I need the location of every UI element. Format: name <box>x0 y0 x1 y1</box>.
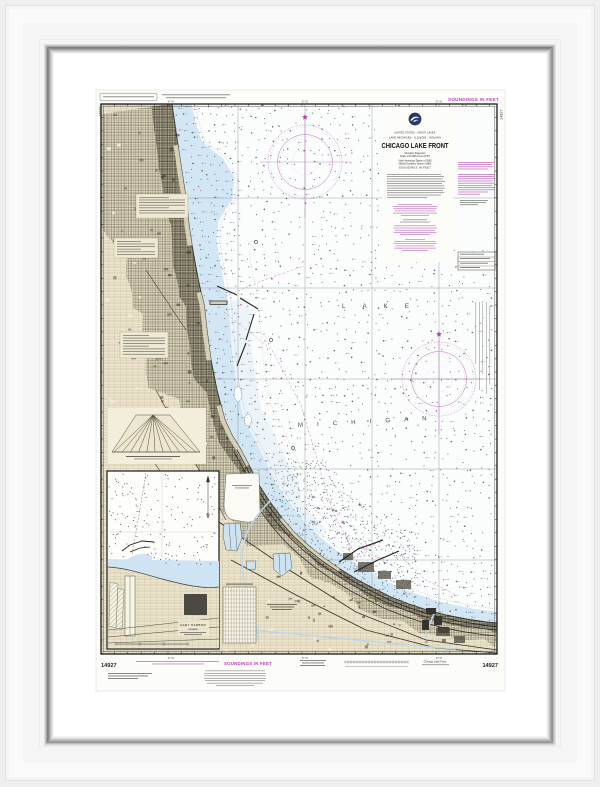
svg-text:87°35': 87°35' <box>302 102 309 104</box>
svg-text:GARY HARBOR: GARY HARBOR <box>180 623 207 627</box>
svg-text:SOUNDINGS IN FEET: SOUNDINGS IN FEET <box>399 166 431 170</box>
svg-text:CHICAGO LAKE FRONT: CHICAGO LAKE FRONT <box>382 141 449 150</box>
svg-text:14927: 14927 <box>500 109 504 120</box>
svg-text:(World Geodetic System 1984): (World Geodetic System 1984) <box>399 163 432 166</box>
svg-text:87°40': 87°40' <box>168 102 175 104</box>
svg-text:87°30': 87°30' <box>436 102 443 104</box>
svg-text:Scale 1:60,000 at Lat 41°53': Scale 1:60,000 at Lat 41°53' <box>400 155 431 158</box>
svg-text:SOUNDINGS IN FEET: SOUNDINGS IN FEET <box>224 661 272 666</box>
svg-text:87°35': 87°35' <box>302 658 309 660</box>
svg-text:87°40': 87°40' <box>168 658 175 660</box>
svg-text:SOUNDINGS IN FEET: SOUNDINGS IN FEET <box>448 97 499 102</box>
svg-text:UNITED STATES - GREAT LAKES: UNITED STATES - GREAT LAKES <box>395 131 436 135</box>
svg-text:14927: 14927 <box>101 663 117 669</box>
svg-text:Chicago Lake Front: Chicago Lake Front <box>424 660 447 664</box>
svg-text:INDIANA: INDIANA <box>189 628 198 631</box>
svg-text:LAKE: LAKE <box>342 303 426 310</box>
svg-text:LAKE MICHIGAN - ILLINOIS - IND: LAKE MICHIGAN - ILLINOIS - INDIANA <box>389 136 441 140</box>
svg-text:14927: 14927 <box>98 106 102 117</box>
svg-text:14927: 14927 <box>482 663 498 669</box>
